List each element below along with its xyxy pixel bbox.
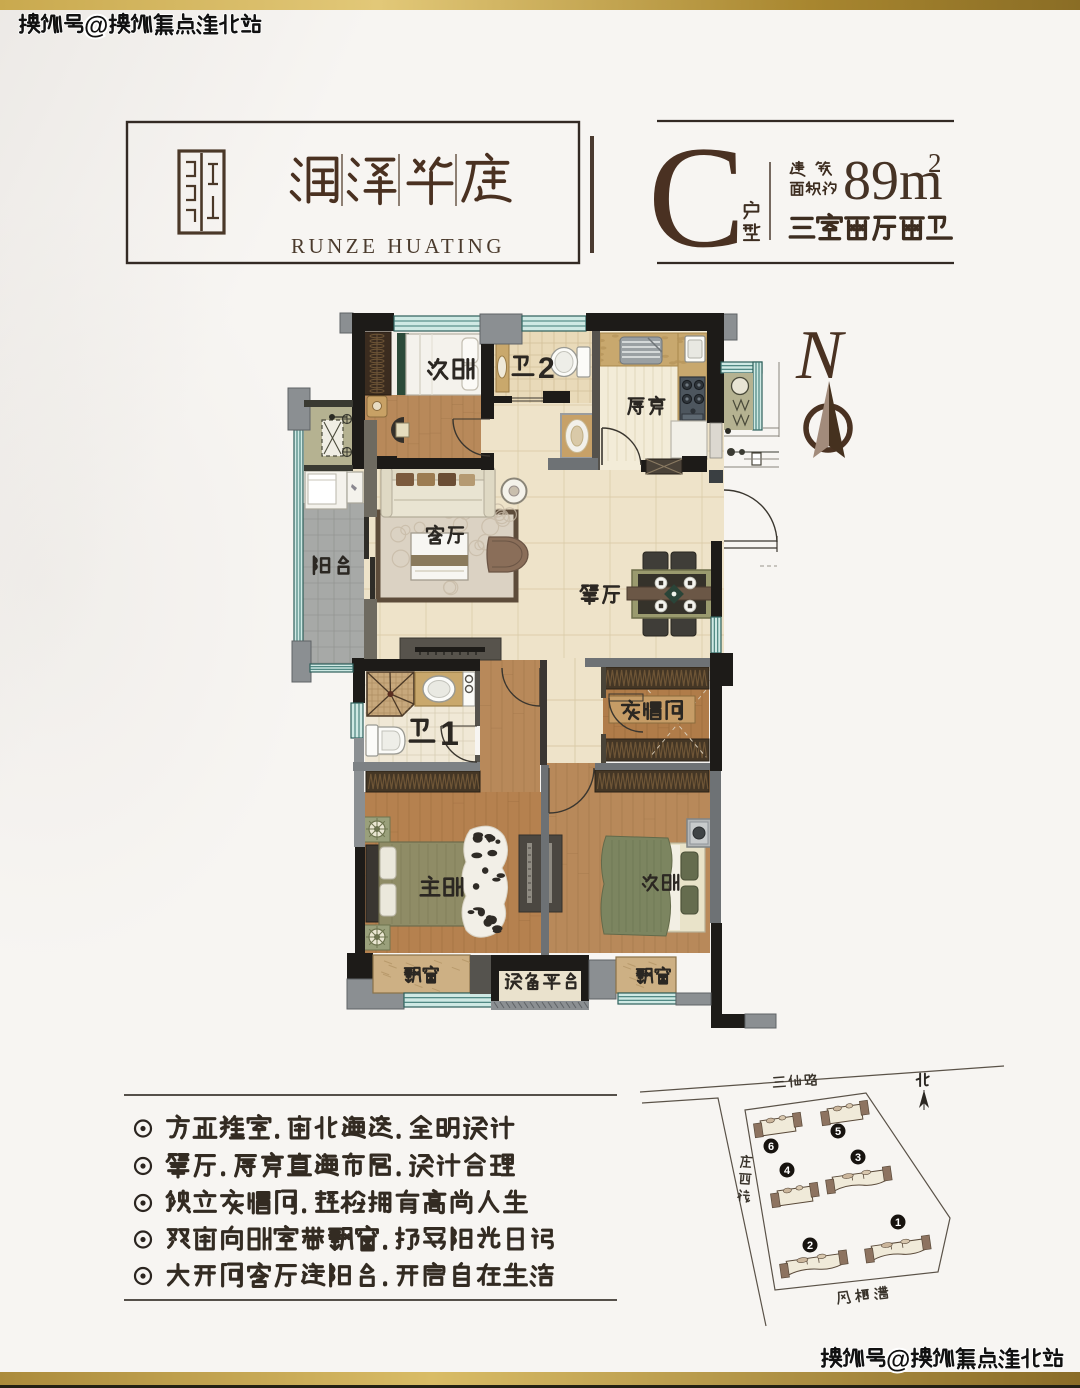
svg-text:1: 1 bbox=[440, 715, 459, 753]
svg-text:@: @ bbox=[886, 1346, 910, 1374]
svg-text:3: 3 bbox=[855, 1152, 861, 1164]
svg-text:2: 2 bbox=[538, 352, 555, 385]
svg-text:2: 2 bbox=[928, 148, 942, 178]
svg-text:C: C bbox=[648, 116, 745, 278]
svg-text:N: N bbox=[795, 317, 846, 394]
svg-text:1: 1 bbox=[895, 1217, 901, 1229]
svg-text:@: @ bbox=[84, 12, 108, 40]
svg-text:5: 5 bbox=[835, 1126, 841, 1138]
svg-text:2: 2 bbox=[807, 1240, 813, 1252]
svg-text:6: 6 bbox=[768, 1141, 774, 1153]
svg-text:4: 4 bbox=[784, 1165, 791, 1177]
svg-text:RUNZE HUATING: RUNZE HUATING bbox=[291, 234, 505, 258]
